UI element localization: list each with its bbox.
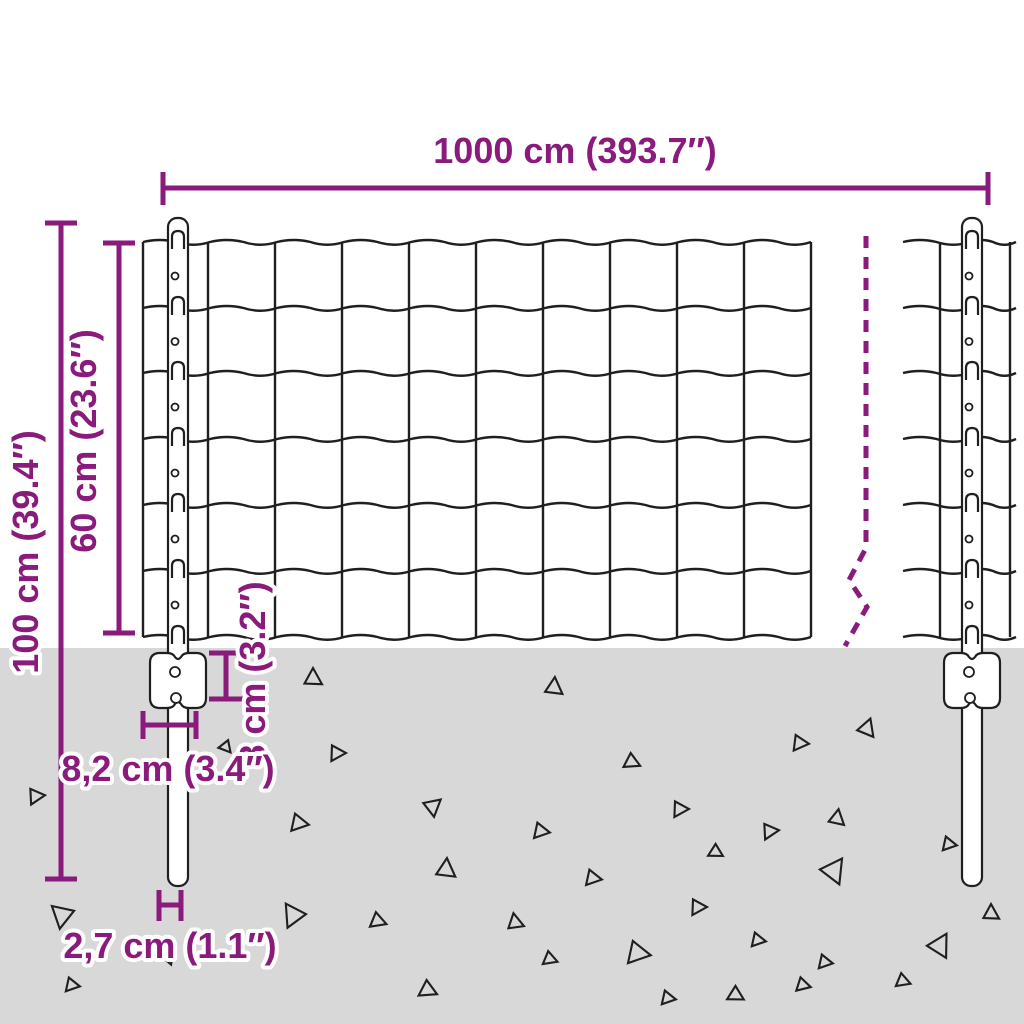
- post-hole: [172, 470, 179, 477]
- wire-hook: [966, 231, 978, 249]
- post-hole: [172, 338, 179, 345]
- anchor-width-label: 8,2 cm (3.4″): [61, 748, 274, 789]
- wire-hook: [172, 494, 184, 512]
- post-hole: [172, 273, 179, 280]
- post-hole: [966, 536, 973, 543]
- wire-hook: [966, 362, 978, 380]
- anchor-depth-label: 8 cm (3.2″): [232, 581, 273, 764]
- post-hole: [966, 273, 973, 280]
- anchor-bracket-hole: [964, 667, 974, 677]
- anchor-bracket-hole: [965, 693, 975, 703]
- fence-dimension-diagram: 1000 cm (393.7″) 100 cm (39.4″) 60 cm (2…: [0, 0, 1024, 1024]
- wire-hook: [172, 428, 184, 446]
- post-hole: [966, 338, 973, 345]
- post-hole: [172, 536, 179, 543]
- wire-hook: [966, 626, 978, 644]
- post-hole: [172, 404, 179, 411]
- wire-hook: [172, 362, 184, 380]
- fence-post: [962, 218, 982, 886]
- wire-hook: [172, 297, 184, 315]
- total-height-label: 100 cm (39.4″): [5, 430, 46, 673]
- wire-hook: [172, 231, 184, 249]
- wire-hook: [966, 494, 978, 512]
- post-hole: [966, 470, 973, 477]
- post-hole: [966, 602, 973, 609]
- wire-hook: [966, 560, 978, 578]
- wire-hook: [966, 297, 978, 315]
- post-hole: [172, 602, 179, 609]
- post-hole: [966, 404, 973, 411]
- mesh-height-label: 60 cm (23.6″): [63, 329, 104, 552]
- wire-hook: [966, 428, 978, 446]
- wire-hook: [172, 560, 184, 578]
- fence-length-label: 1000 cm (393.7″): [433, 130, 716, 171]
- post-diameter-label: 2,7 cm (1.1″): [63, 925, 276, 966]
- wire-hook: [172, 626, 184, 644]
- anchor-bracket-hole: [171, 693, 181, 703]
- anchor-bracket-hole: [170, 667, 180, 677]
